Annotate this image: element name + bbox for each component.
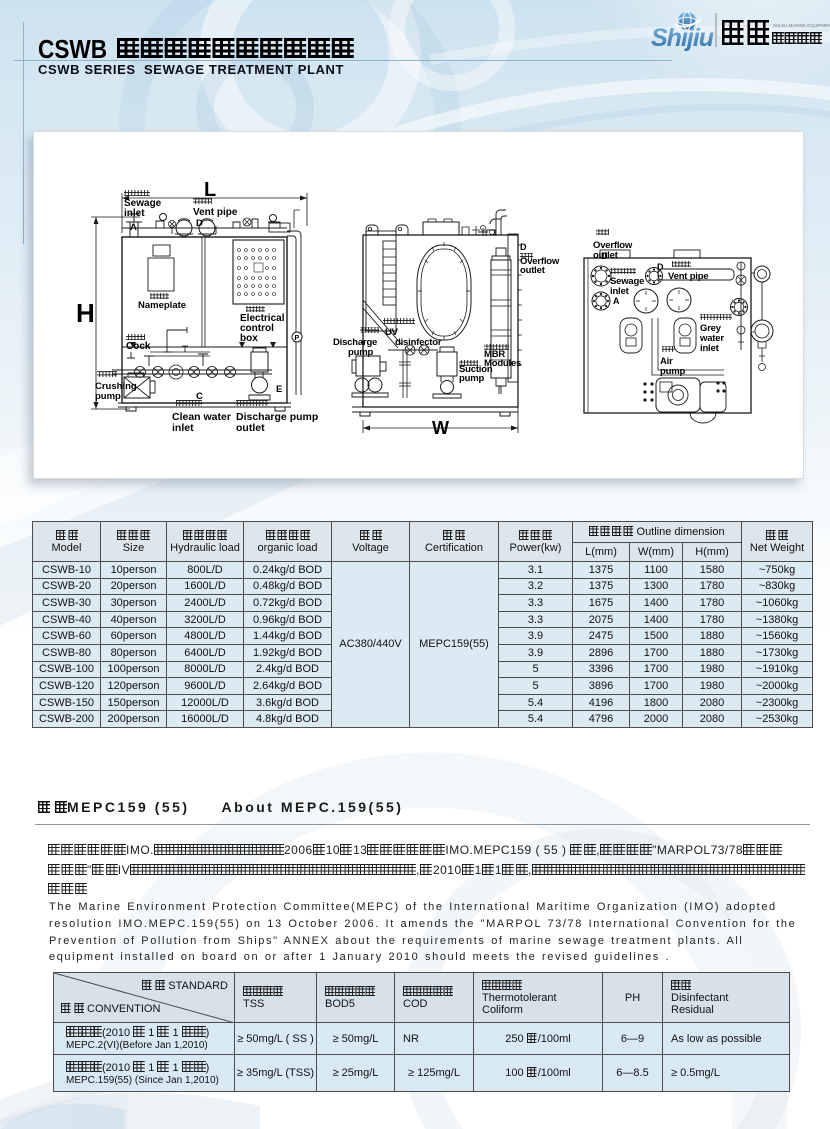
svg-text:D: D (520, 242, 527, 252)
svg-text:H: H (76, 298, 95, 328)
svg-text:L: L (204, 179, 216, 201)
svg-text:box: box (240, 333, 258, 344)
svg-text:W: W (432, 418, 449, 438)
svg-text:Cock: Cock (126, 341, 151, 352)
svg-text:D: D (196, 218, 203, 229)
svg-text:inlet: inlet (124, 208, 145, 219)
svg-text:Vent pipe: Vent pipe (668, 271, 708, 282)
svg-text:D: D (657, 262, 664, 272)
svg-text:outlet: outlet (520, 265, 546, 276)
svg-text:P: P (295, 335, 300, 342)
svg-text:Nameplate: Nameplate (138, 300, 186, 311)
svg-text:pump: pump (660, 366, 685, 377)
svg-text:disinfector: disinfector (395, 337, 442, 348)
svg-text:outlet: outlet (236, 422, 265, 434)
svg-text:Vent pipe: Vent pipe (193, 207, 238, 218)
svg-text:inlet: inlet (172, 422, 194, 434)
svg-text:E: E (276, 384, 282, 395)
svg-text:A: A (613, 296, 620, 306)
svg-text:pump: pump (459, 373, 484, 384)
svg-text:inlet: inlet (700, 343, 720, 354)
svg-text:pump: pump (95, 391, 121, 402)
svg-text:Modules: Modules (484, 358, 521, 369)
svg-text:D: D (601, 251, 608, 261)
svg-text:A: A (130, 222, 137, 233)
